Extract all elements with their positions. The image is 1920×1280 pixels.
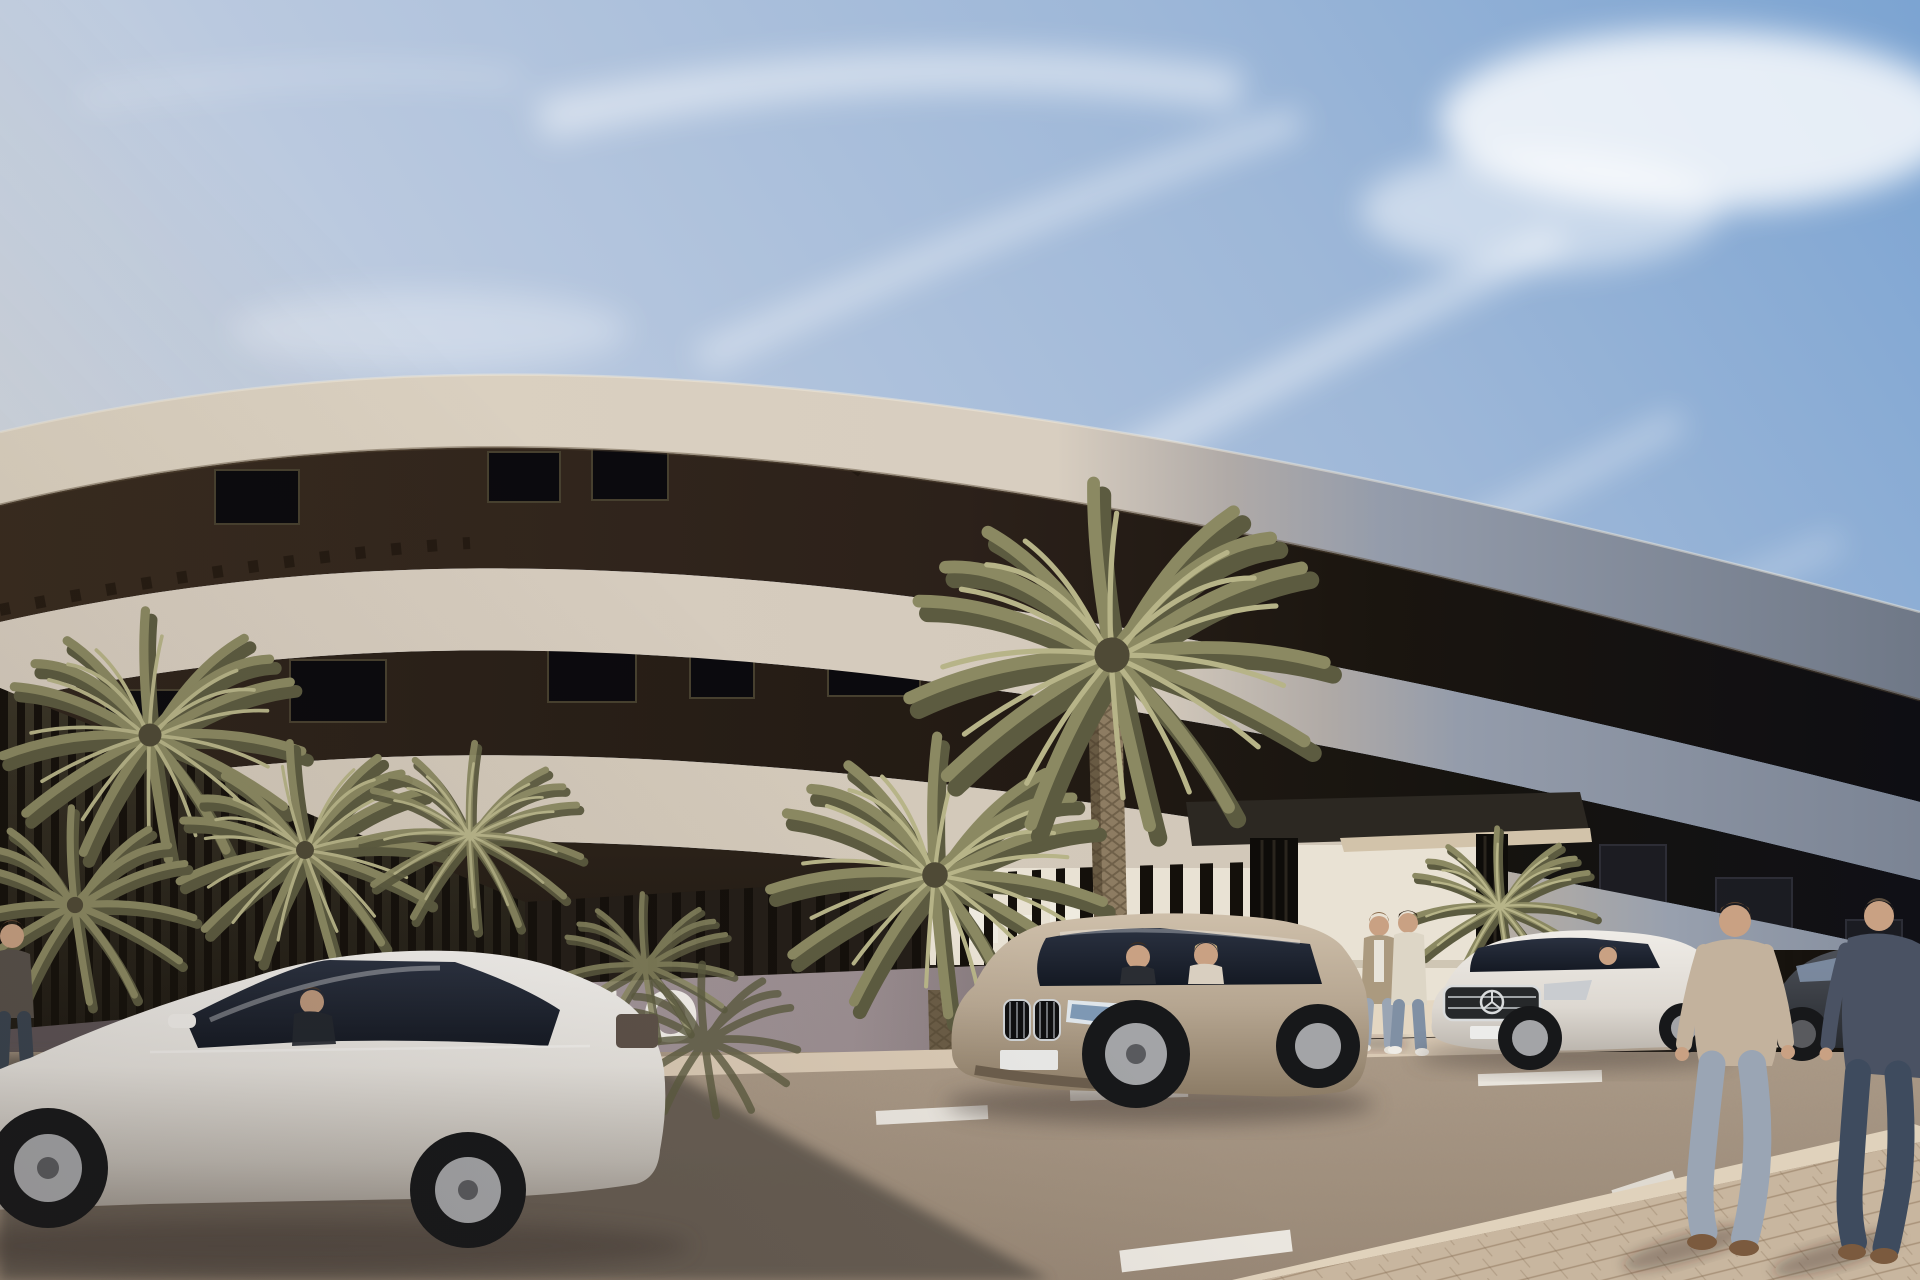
scene: TO bbox=[0, 0, 1920, 1280]
render-image: TO bbox=[0, 0, 1920, 1280]
vignette bbox=[0, 0, 1920, 1280]
